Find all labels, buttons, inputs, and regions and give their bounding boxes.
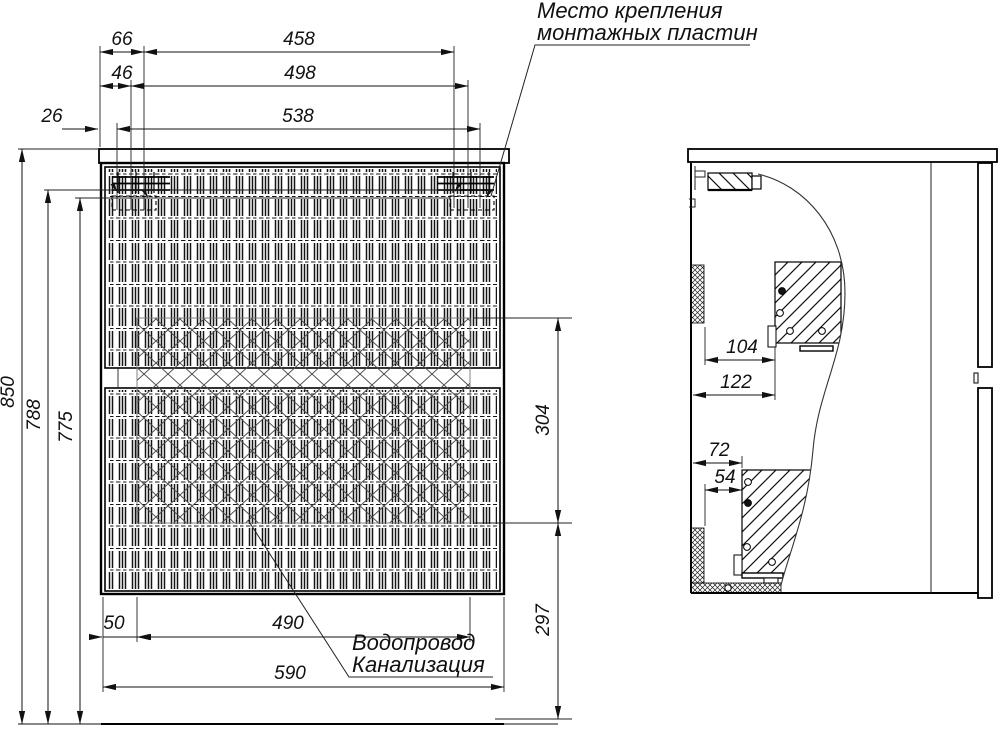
dim-458: 458 (283, 29, 315, 50)
dim-788: 788 (24, 399, 45, 431)
plumbing-zone-crosshatch (137, 318, 470, 523)
countertop-front (99, 149, 509, 163)
countertop-side (688, 149, 997, 162)
dim-590: 590 (274, 663, 306, 684)
dim-66: 66 (111, 29, 133, 50)
upper-drawer-front-side (978, 163, 992, 367)
dim-775: 775 (56, 411, 77, 443)
upper-slide-bracket (768, 262, 841, 351)
dim-50: 50 (103, 613, 125, 634)
bottom-rail (691, 583, 781, 593)
dim-538: 538 (282, 106, 314, 127)
wall-rail-upper (691, 265, 704, 323)
dim-122: 122 (720, 372, 752, 393)
front-view (99, 149, 509, 594)
drawer-gap-tab (974, 373, 978, 383)
dim-104: 104 (726, 337, 758, 358)
dim-297: 297 (533, 603, 554, 637)
mounting-plates-callout: Место крепления монтажных пластин (491, 0, 758, 196)
dim-54: 54 (714, 467, 735, 488)
mounting-plates-label-line2: монтажных пластин (537, 20, 758, 45)
technical-drawing: 66 458 46 498 26 538 850 788 775 304 297 (0, 0, 1001, 729)
lower-drawer-front-side (978, 388, 992, 598)
dim-72: 72 (708, 440, 730, 461)
bottom-rail-hole (725, 585, 731, 591)
dim-850: 850 (0, 376, 19, 408)
drawing-page: 66 458 46 498 26 538 850 788 775 304 297 (0, 0, 1001, 729)
dim-26: 26 (40, 106, 63, 127)
dim-498: 498 (284, 63, 316, 84)
dim-46: 46 (111, 63, 133, 84)
dim-490: 490 (272, 613, 304, 634)
plumbing-label-line2: Канализация (352, 652, 485, 677)
top-mounting-bracket-section (708, 173, 761, 190)
wall-rail-lower (691, 528, 704, 583)
dim-304: 304 (533, 404, 554, 436)
